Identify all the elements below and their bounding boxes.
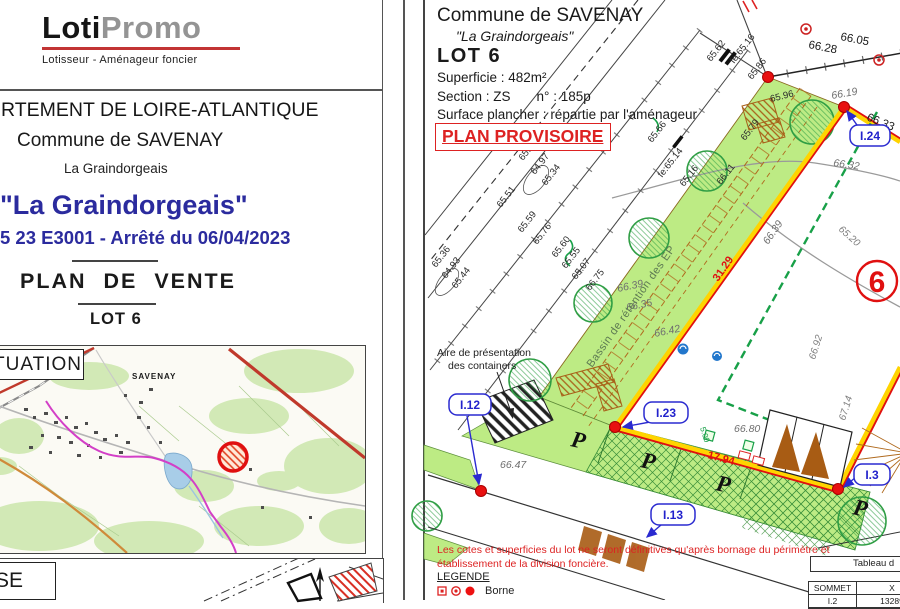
measure-label: 67.14 <box>837 394 855 422</box>
measure-label: 66.05 <box>839 31 870 48</box>
water-valve-icon <box>678 344 689 355</box>
rp-numero: n° : 185p <box>537 89 591 104</box>
dossier-reference: 5 23 E3001 - Arrêté du 06/04/2023 <box>0 227 290 249</box>
site-marker-icon <box>219 443 247 471</box>
lieu-line: La Graindorgeais <box>64 161 168 176</box>
rp-superficie: Superficie : 482m² <box>437 70 547 85</box>
measure-label: 66.28 <box>807 39 838 56</box>
situation-panel-label: TUATION <box>0 349 84 380</box>
measure-label: 66.80 <box>734 423 760 435</box>
table-header-row: SOMMET X <box>809 582 900 595</box>
map-town-label: SAVENAY <box>132 372 176 381</box>
header-divider <box>0 89 382 91</box>
elevation-label: 65.66 <box>646 119 669 145</box>
point-label-i24: I.24 <box>860 129 880 143</box>
measure-label: 66.47 <box>500 459 527 471</box>
logo: LotiPromo Lotisseur - Aménageur foncier <box>42 10 272 66</box>
point-label-i13: I.13 <box>663 508 683 522</box>
elevation-label: 65.51 <box>495 184 518 210</box>
legend-title: LEGENDE <box>437 571 490 583</box>
logo-tagline: Lotisseur - Aménageur foncier <box>42 54 272 66</box>
rp-lot-title: LOT 6 <box>437 45 501 68</box>
measure-label: 66.19 <box>830 86 858 102</box>
borne-symbols-icon <box>437 584 481 598</box>
utility-box-icon <box>743 440 754 451</box>
legend-row: Borne <box>437 584 514 598</box>
table-row: I.2 13289 <box>809 595 900 608</box>
logo-part1: Loti <box>42 10 101 45</box>
point-label-i23: I.23 <box>656 406 676 420</box>
rp-commune: Commune de SAVENAY <box>437 5 643 27</box>
masse-panel-label: SE <box>0 562 56 600</box>
divider <box>72 260 158 262</box>
lot-title: LOT 6 <box>90 310 142 329</box>
plan-type-title: PLAN DE VENTE <box>20 269 236 294</box>
water-valve-icon <box>712 351 722 361</box>
col-x: X <box>857 582 900 594</box>
divider <box>78 303 156 305</box>
dimension-label: 5.00 <box>698 426 712 444</box>
lot-number: 6 <box>869 266 886 299</box>
department-line: RTEMENT DE LOIRE-ATLANTIQUE <box>1 99 318 122</box>
containers-label: des containers <box>448 360 516 372</box>
point-label-i3: I.3 <box>865 468 879 482</box>
elevation-label: 65.76 <box>531 221 554 247</box>
elevation-label: 65.62 <box>705 38 728 64</box>
masse-drawing <box>0 559 383 603</box>
measure-label: 66.92 <box>807 333 825 361</box>
rp-section: Section : ZSn° : 185p <box>437 89 591 104</box>
logo-part2: Promo <box>101 10 202 45</box>
legend-borne-label: Borne <box>485 585 514 597</box>
masse-panel <box>0 558 384 603</box>
elevation-label: 65.59 <box>516 209 539 235</box>
plan-de-vente-document: { "left_page": { "logo_part1": "Loti", "… <box>0 0 900 600</box>
containers-label: Aire de présentation <box>437 347 531 359</box>
point-label-i12: I.12 <box>460 398 480 412</box>
table-title-box: Tableau d <box>810 556 900 572</box>
table-title: Tableau d <box>853 558 894 569</box>
measure-label: 65.20 <box>836 224 862 249</box>
logo-underline <box>42 47 240 50</box>
commune-line: Commune de SAVENAY <box>17 130 223 152</box>
col-sommet: SOMMET <box>809 582 857 594</box>
rp-surface-plancher: Surface plancher : répartie par l'aménag… <box>437 107 697 122</box>
project-title: "La Graindorgeais" <box>0 190 248 221</box>
note-line1: Les cotes et superficies du lot ne seron… <box>437 544 829 556</box>
measure-label: 66.32 <box>833 157 861 173</box>
rp-lieu: "La Graindorgeais" <box>456 28 573 44</box>
logo-wordmark: LotiPromo <box>42 10 272 46</box>
coordinates-table: SOMMET X I.2 13289 <box>808 581 900 609</box>
plan-provisoire-stamp: PLAN PROVISOIRE <box>435 123 611 151</box>
note-line2: établissement de la division foncière. <box>437 558 609 570</box>
left-page: LotiPromo Lotisseur - Aménageur foncier … <box>0 0 383 600</box>
